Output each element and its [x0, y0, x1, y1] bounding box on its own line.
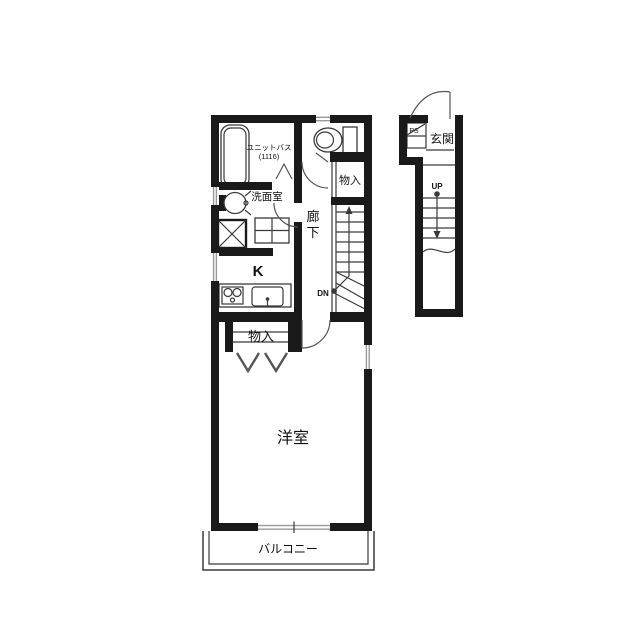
closet-door-right: [265, 353, 287, 371]
room-door: [302, 320, 330, 348]
entrance-block: PS 玄関 UP: [399, 92, 463, 317]
entrance-staircase: [423, 165, 455, 252]
window-left-kitchen: [211, 253, 219, 281]
kitchen-counter: [219, 284, 291, 307]
corridor-label-2: 下: [306, 225, 319, 240]
unit-bath-size-label: (1116): [259, 152, 280, 161]
corridor-label-1: 廊: [306, 209, 319, 224]
down-arrow: [331, 206, 352, 294]
kitchen-label: K: [253, 263, 264, 280]
window-left-washroom: [211, 187, 219, 205]
floorplan-drawing: ユニットバス (1116) 洗面室 K 廊 下 物入 物入 洋室 バルコニー D…: [0, 0, 640, 640]
entrance-label: 玄関: [430, 131, 454, 146]
winder-step: [336, 272, 364, 286]
bath-folding-door: [276, 164, 292, 179]
floorplan: ユニットバス (1116) 洗面室 K 廊 下 物入 物入 洋室 バルコニー D…: [0, 0, 640, 640]
stairs-up-label: UP: [431, 182, 443, 191]
washroom-label: 洗面室: [251, 190, 283, 203]
main-unit: ユニットバス (1116) 洗面室 K 廊 下 物入 物入 洋室 バルコニー D…: [203, 115, 374, 570]
unit-bath-label: ユニットバス: [247, 143, 292, 152]
western-room-label: 洋室: [277, 429, 309, 447]
winder-step: [334, 293, 367, 310]
window-right-room: [364, 345, 372, 369]
pipe-space-box: [407, 123, 426, 148]
stair-break-line: [423, 249, 455, 252]
washbasin: [219, 191, 251, 215]
balcony-window: [258, 522, 330, 534]
toilet: [314, 127, 357, 153]
shaft-box: [218, 220, 246, 248]
closet-door-left: [237, 353, 259, 371]
toilet-door: [302, 153, 328, 188]
balcony-label: バルコニー: [258, 542, 318, 556]
window-top: [316, 115, 330, 123]
pipe-space-label: PS: [409, 128, 419, 135]
bathtub: [221, 125, 249, 188]
storage-upper-label: 物入: [339, 173, 361, 187]
stairs-down-label: DN: [317, 289, 329, 298]
storage-lower-label: 物入: [248, 329, 274, 344]
entrance-door: [410, 92, 450, 119]
